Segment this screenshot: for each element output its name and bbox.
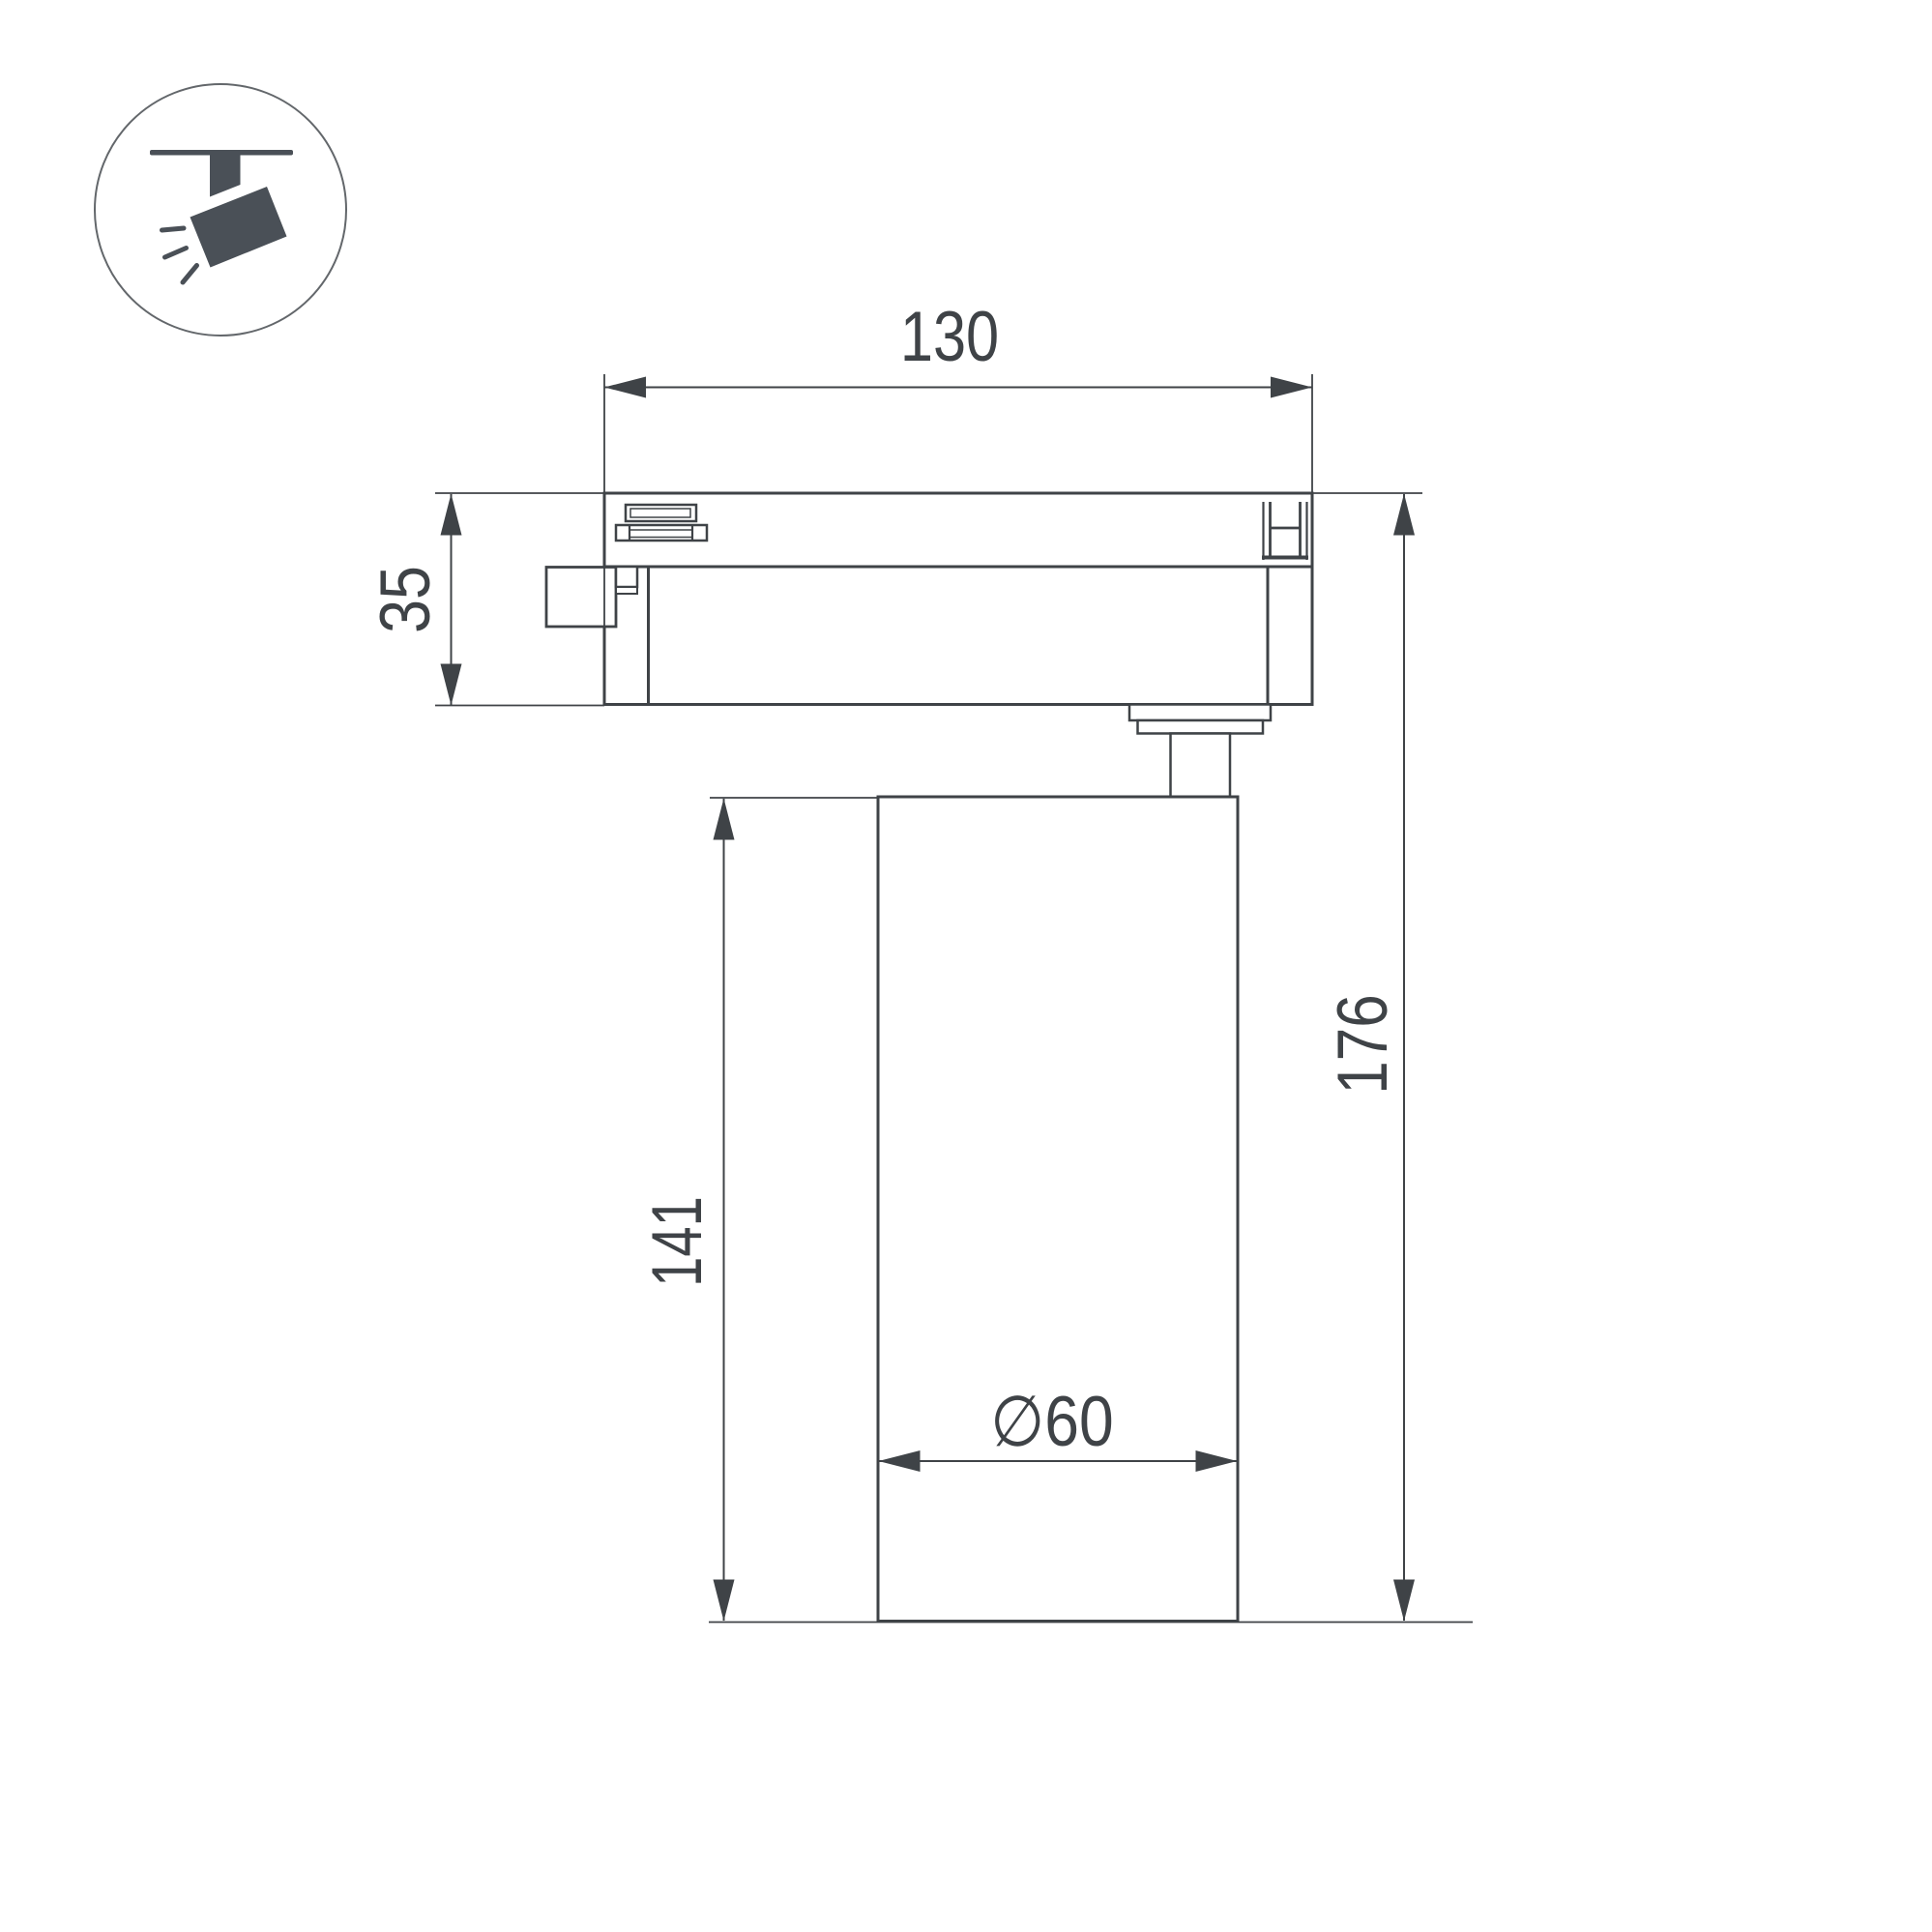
svg-text:141: 141 [637,1196,717,1287]
svg-text:35: 35 [366,566,445,633]
svg-text:176: 176 [1324,994,1402,1095]
svg-text:∅60: ∅60 [990,1382,1113,1461]
svg-text:130: 130 [900,298,999,376]
